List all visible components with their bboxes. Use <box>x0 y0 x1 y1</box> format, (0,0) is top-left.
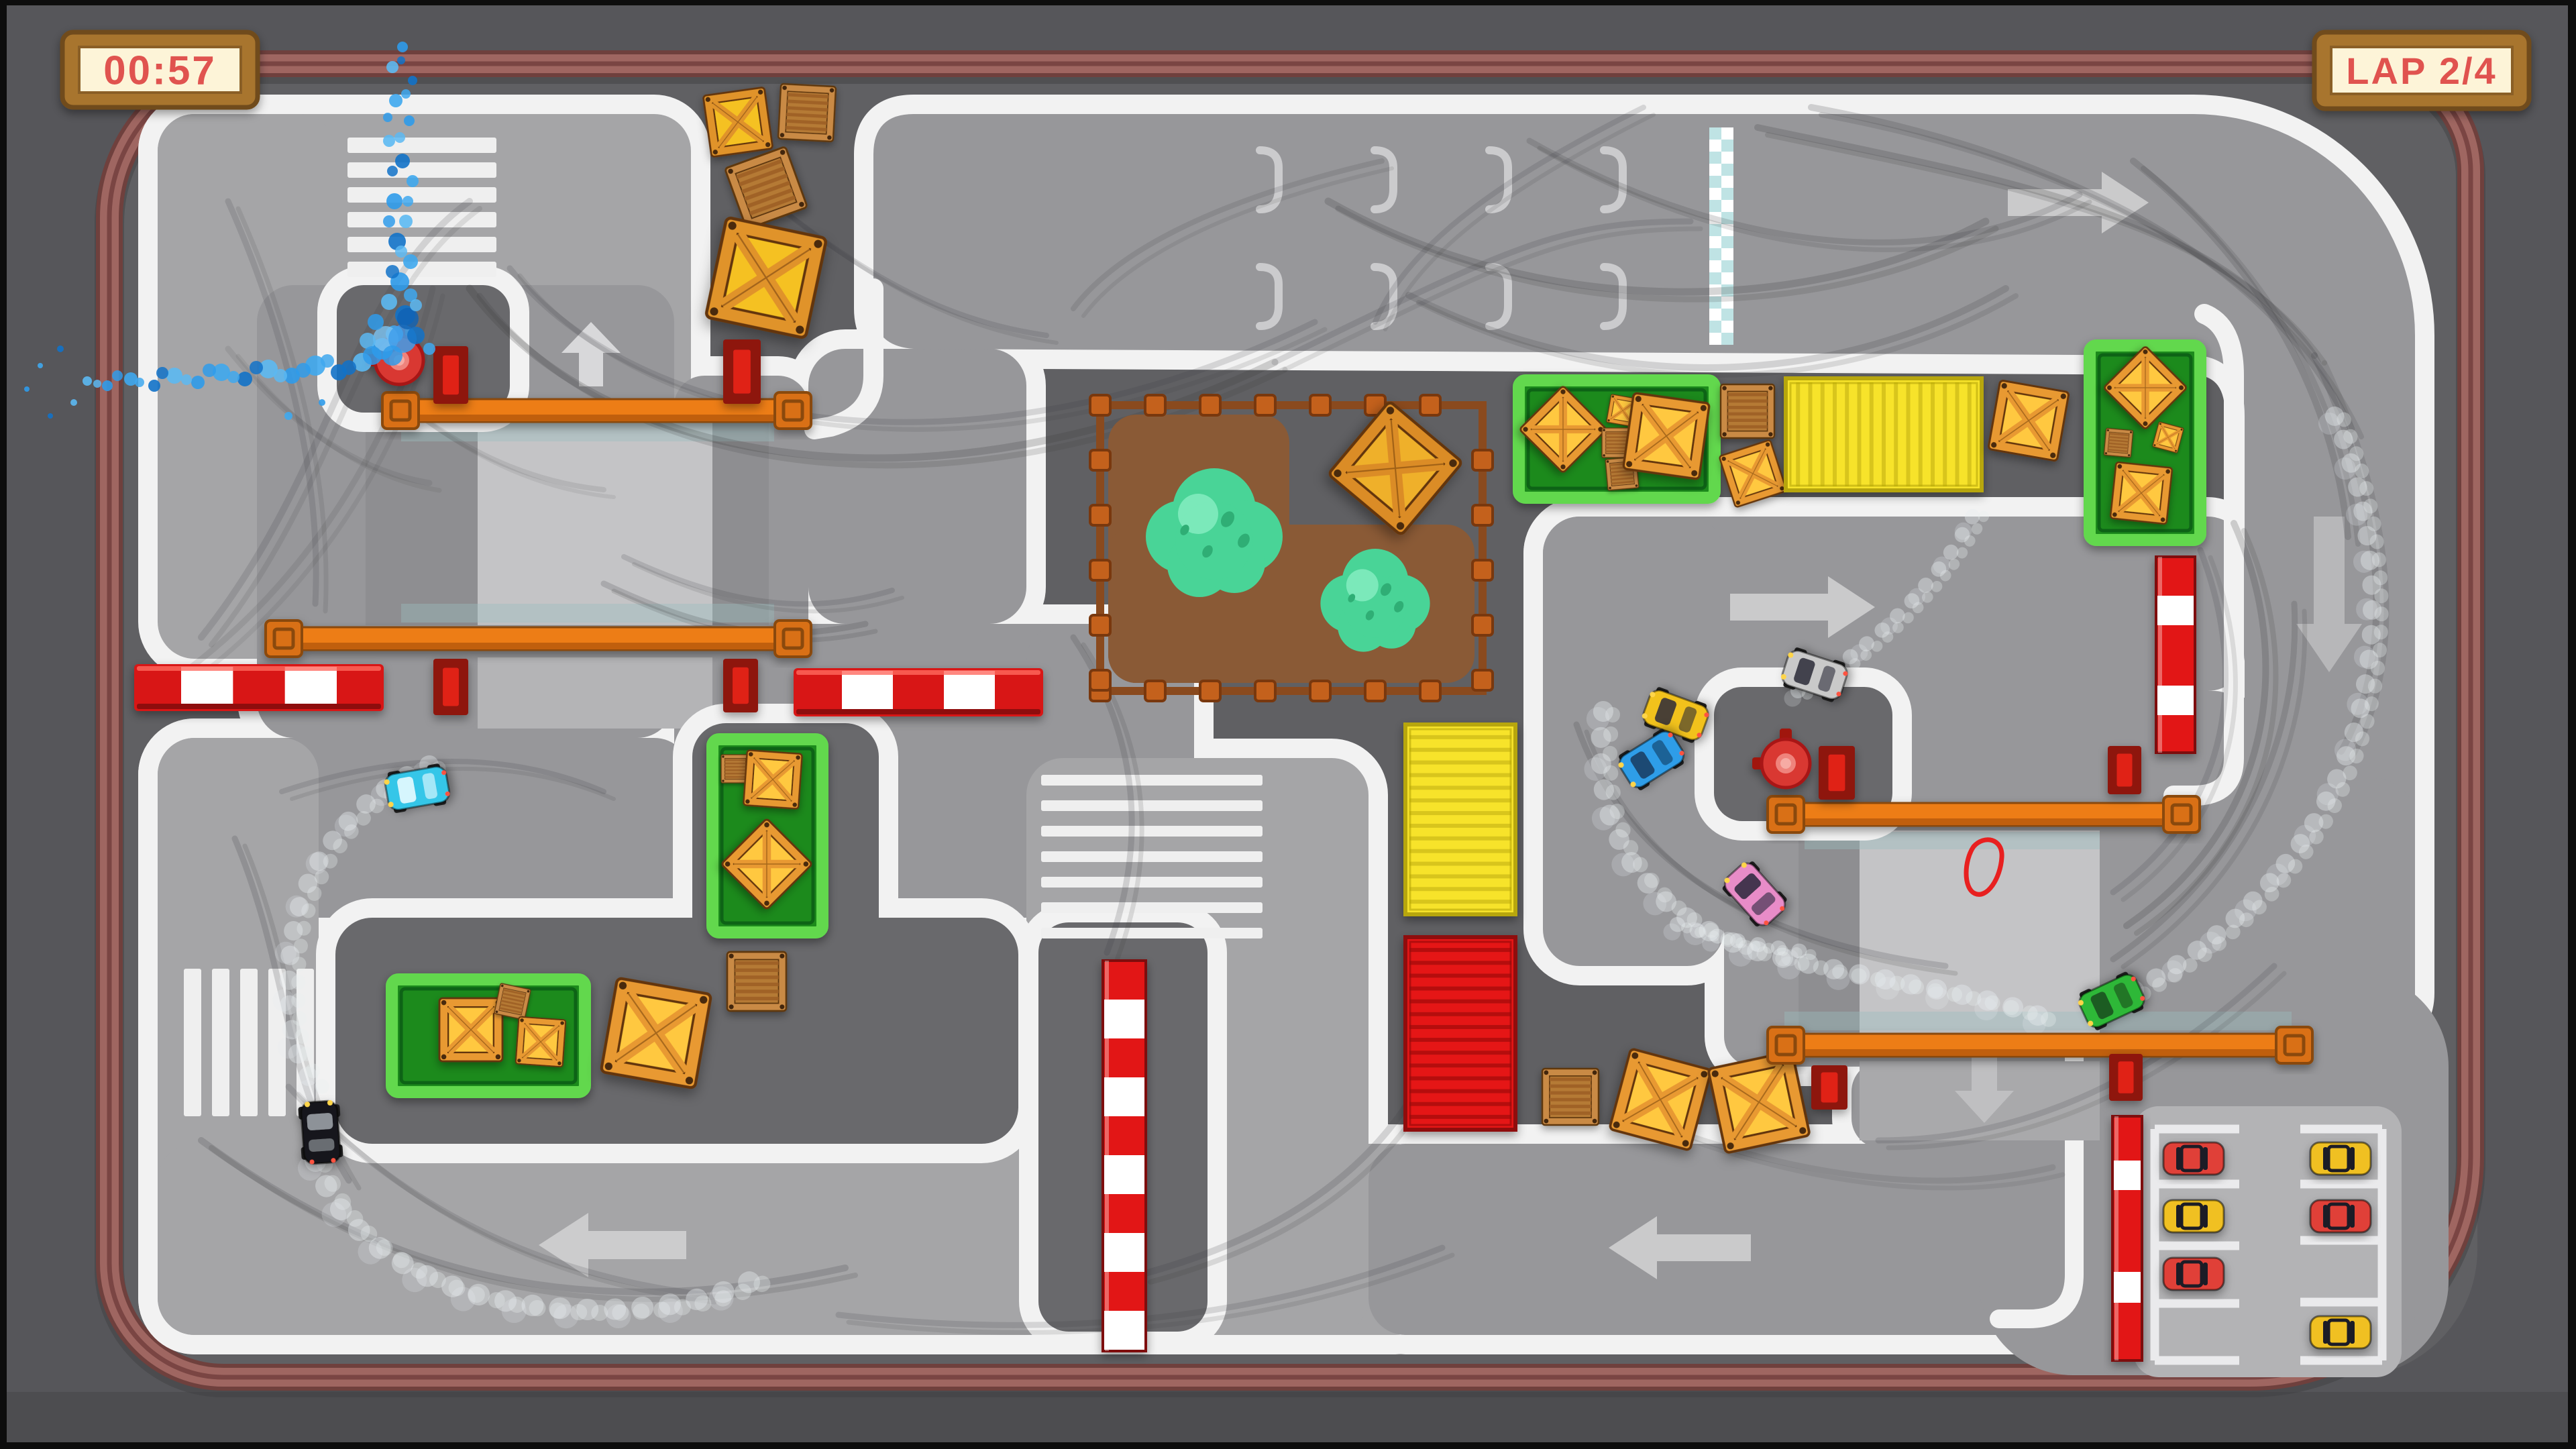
svg-text:LAP 2/4: LAP 2/4 <box>2346 50 2497 92</box>
svg-text:00:57: 00:57 <box>103 48 216 93</box>
